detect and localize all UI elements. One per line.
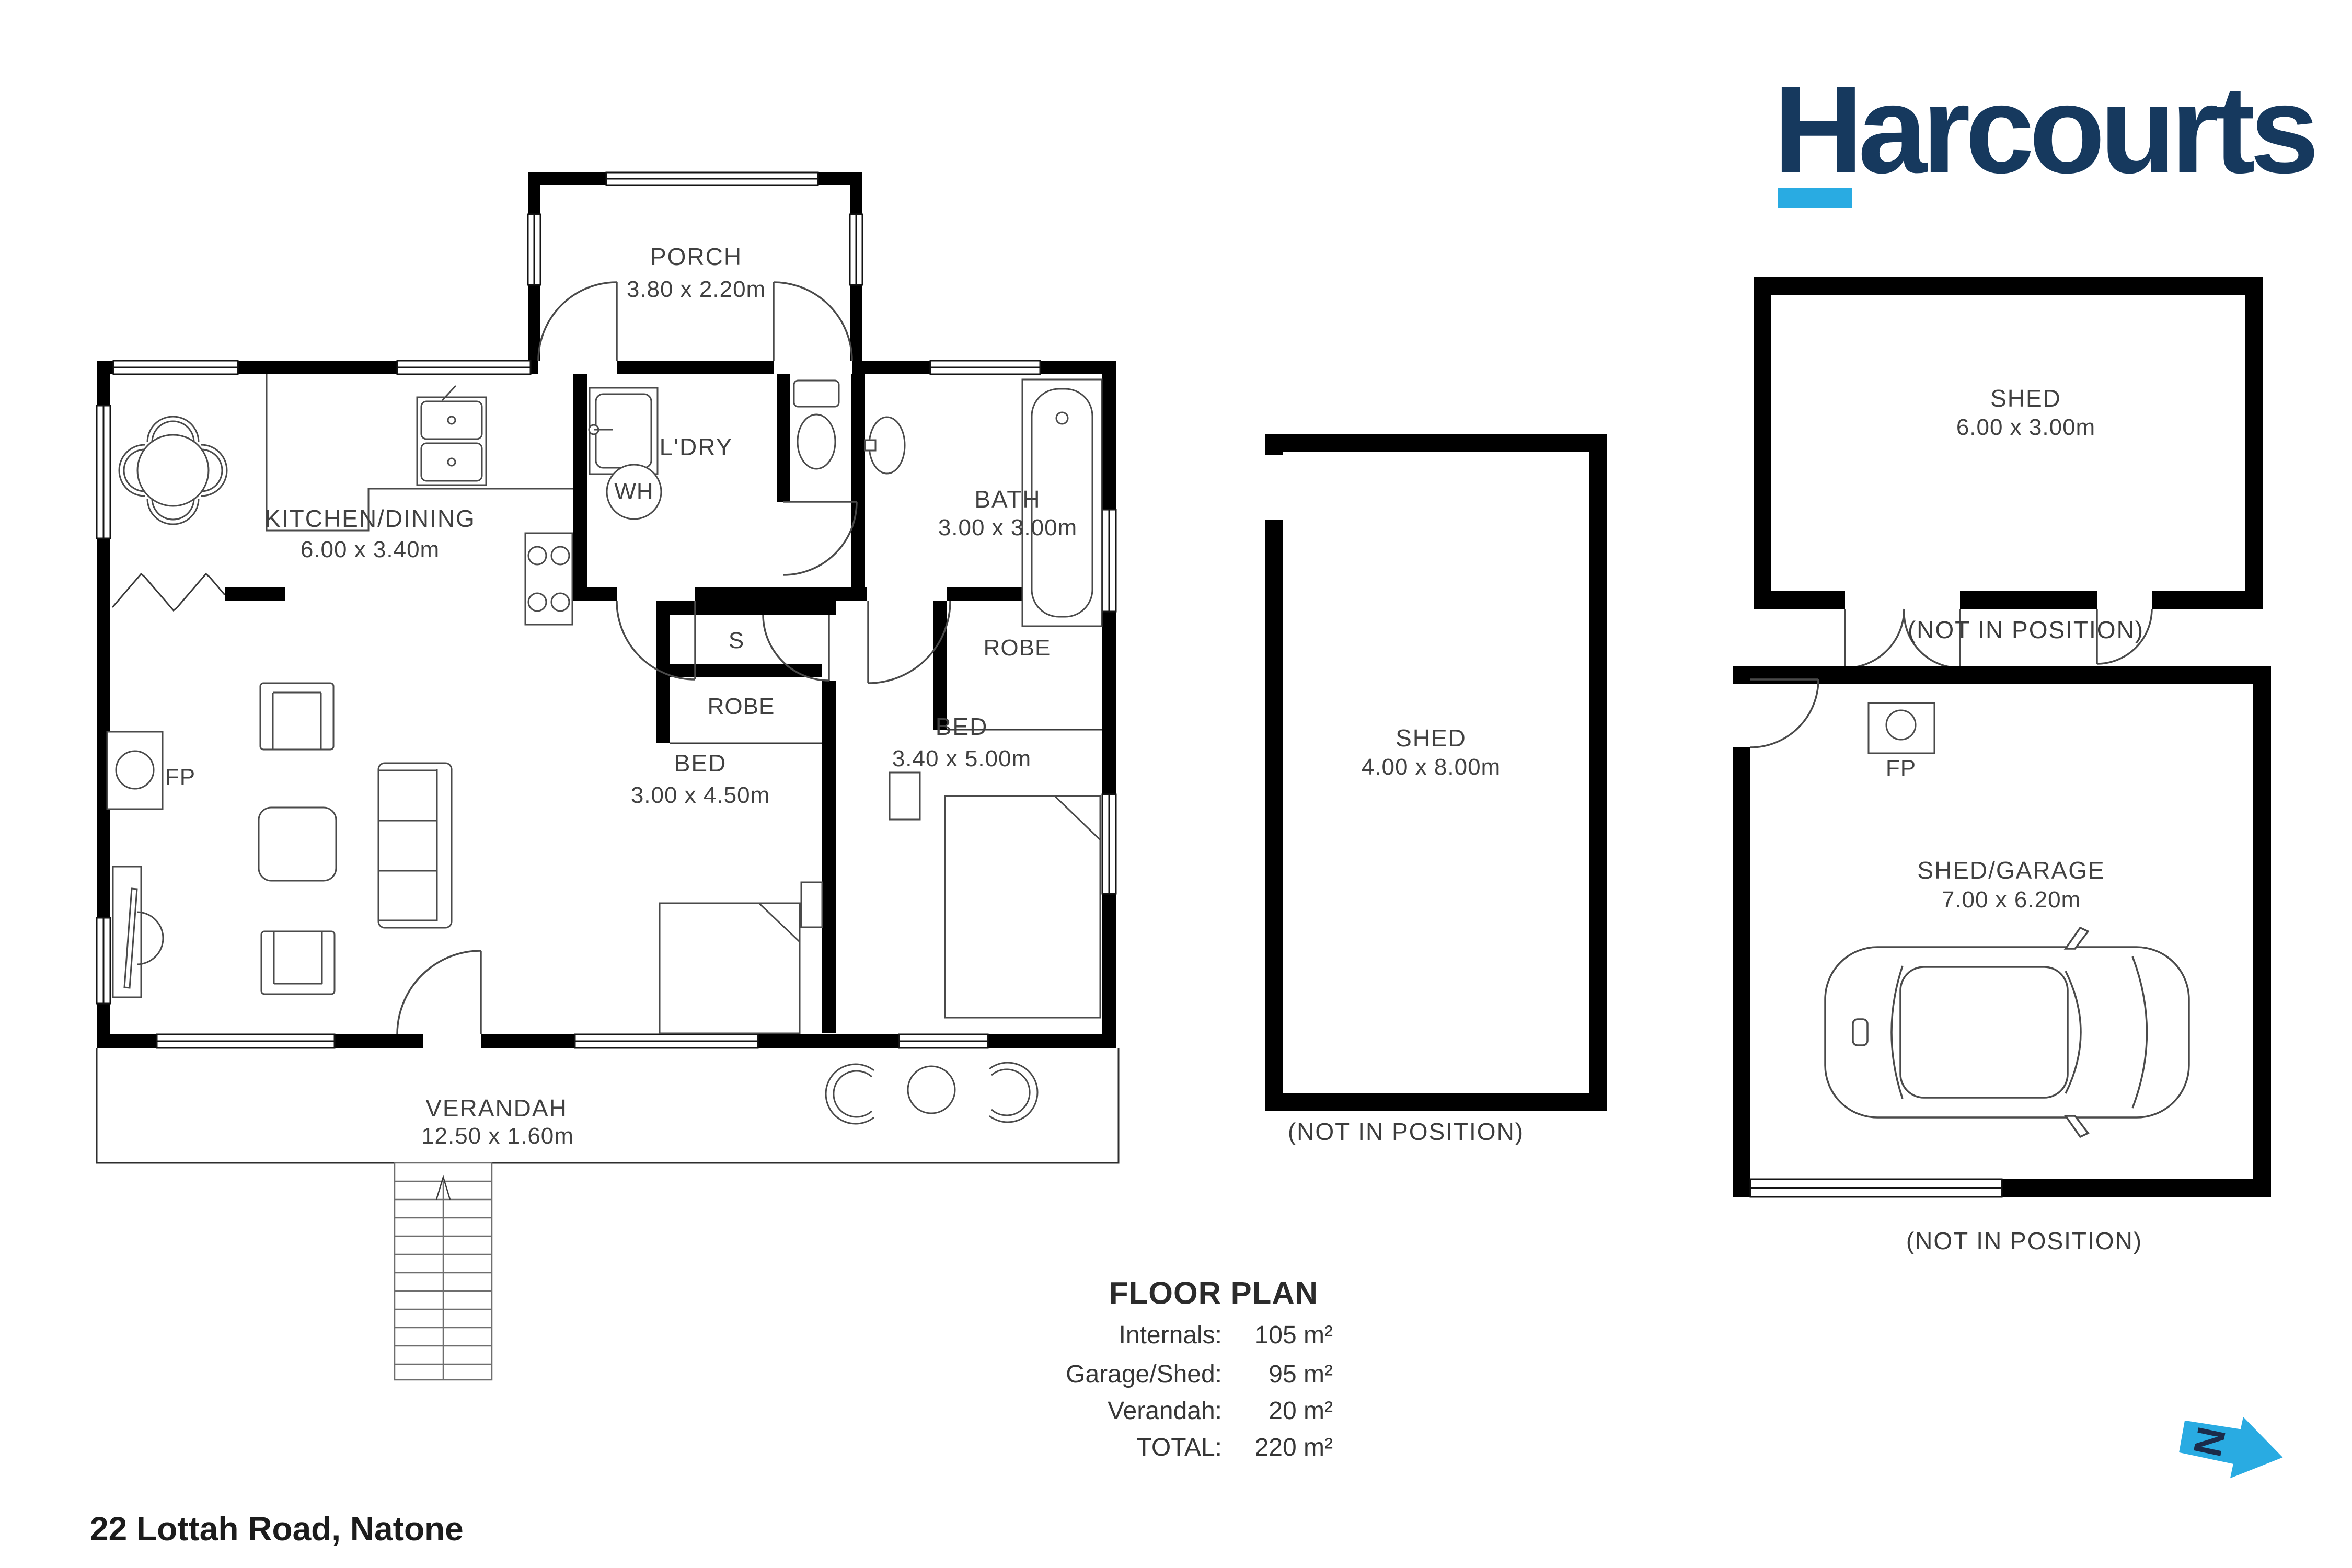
bath-label: BATH <box>974 485 1041 513</box>
water-heater-label: WH <box>614 479 653 505</box>
garage-label: SHED/GARAGE <box>1917 856 2105 884</box>
verandah-outline <box>97 1048 1119 1163</box>
shed-middle-label: SHED <box>1396 724 1467 752</box>
summary-row-value: 20 m² <box>1228 1397 1333 1425</box>
floorplan-page: { "brand": { "name": "Harcourts", "navy"… <box>0 0 2352 1568</box>
stairs <box>395 1163 492 1380</box>
property-address: 22 Lottah Road, Natone <box>90 1509 464 1548</box>
bath-dims: 3.00 x 3.00m <box>938 515 1077 541</box>
bed2-mattress <box>945 796 1100 1018</box>
shed-middle-dims: 4.00 x 8.00m <box>1362 754 1501 780</box>
bed2-dims: 3.40 x 5.00m <box>892 746 1031 772</box>
logo-underline <box>1778 188 1852 208</box>
garage-window <box>1750 1179 2002 1197</box>
porch-dims: 3.80 x 2.20m <box>627 276 766 303</box>
robe-bed1-label: ROBE <box>708 694 775 720</box>
armchair-bottom <box>261 931 335 994</box>
toilet <box>794 381 839 407</box>
storage-label: S <box>729 628 744 654</box>
outdoor-table <box>908 1066 955 1113</box>
north-arrow: N <box>2175 1405 2289 1488</box>
coffee-table <box>259 808 336 881</box>
shed-top-right-note: (NOT IN POSITION) <box>1908 616 2144 644</box>
sofa <box>378 763 452 928</box>
bed1-dims: 3.00 x 4.50m <box>631 782 770 809</box>
bed1-nightstand <box>801 882 822 927</box>
bedroom-furniture <box>660 773 1100 1033</box>
shed-middle-note: (NOT IN POSITION) <box>1288 1117 1524 1146</box>
dining-table <box>137 435 209 506</box>
summary-row-label: Verandah: <box>898 1397 1222 1425</box>
garage-fireplace-label: FP <box>1886 755 1916 781</box>
bed2-label: BED <box>936 712 988 741</box>
garage-dims: 7.00 x 6.20m <box>1942 887 2081 913</box>
summary-row-value: 105 m² <box>1228 1321 1333 1350</box>
summary-row-value: 95 m² <box>1228 1360 1333 1389</box>
verandah-dims: 12.50 x 1.60m <box>421 1123 574 1149</box>
garage-note: (NOT IN POSITION) <box>1906 1227 2142 1255</box>
summary-row-value: 220 m² <box>1228 1433 1333 1462</box>
verandah-label: VERANDAH <box>425 1094 568 1122</box>
kitchen-dining-label: KITCHEN/DINING <box>264 504 476 533</box>
bed1-label: BED <box>674 749 727 777</box>
garage-fireplace <box>1869 703 1934 753</box>
car <box>1825 928 2189 1137</box>
porch-label: PORCH <box>650 243 742 271</box>
summary-row-label: Garage/Shed: <box>898 1360 1222 1389</box>
summary-row-label: Internals: <box>898 1321 1222 1350</box>
outdoor-set <box>826 1063 1037 1124</box>
shed-top-right-walls <box>1754 277 2263 609</box>
bed2-nightstand <box>890 773 920 820</box>
summary-row-label: TOTAL: <box>898 1433 1222 1462</box>
harcourts-logo: Harcourts <box>1773 68 2314 192</box>
summary-title: FLOOR PLAN <box>1109 1275 1318 1311</box>
stove <box>525 533 572 625</box>
folding-divider <box>112 574 225 610</box>
laundry-label: L'DRY <box>660 433 733 461</box>
shed-top-right-dims: 6.00 x 3.00m <box>1956 414 2095 441</box>
living-furniture <box>107 683 452 997</box>
shed-top-right-label: SHED <box>1990 384 2061 412</box>
garage-door <box>1750 679 1818 747</box>
robe-bed2-label: ROBE <box>984 635 1051 661</box>
fireplace-label: FP <box>165 764 195 790</box>
dining-set <box>119 417 227 524</box>
kitchen-dining-dims: 6.00 x 3.40m <box>301 537 440 563</box>
